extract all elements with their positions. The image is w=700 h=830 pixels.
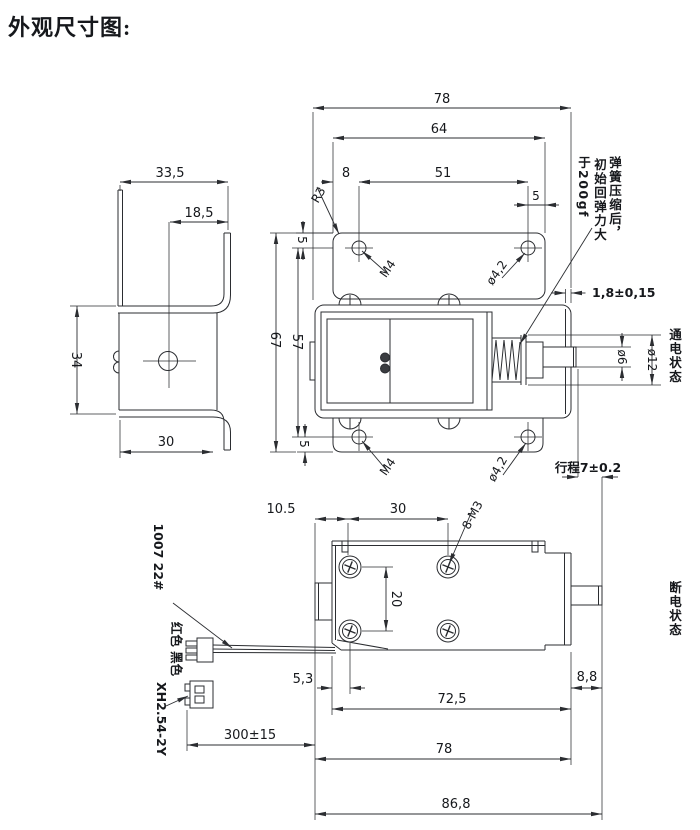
front-bottom-plate: [333, 418, 543, 452]
dim-edge-offset-bottom: 5: [297, 440, 311, 448]
leader-corner-radius: [317, 187, 339, 234]
dim-shaft-dia: ø6: [615, 350, 629, 365]
dim-body-length: 72,5: [438, 692, 467, 707]
washer: [521, 335, 526, 385]
dim-terminal-offset: 10.5: [267, 502, 296, 517]
connector-tooth-1: [186, 641, 197, 646]
wires: [213, 640, 388, 653]
connector-tooth-3: [186, 655, 197, 660]
plunger-shaft: [543, 347, 576, 367]
bottom-tab-slot-left: [342, 541, 348, 552]
leader-screws: [449, 511, 472, 564]
connector-body: [197, 638, 213, 662]
dim-hole-spacing: 51: [435, 166, 452, 181]
bracket-tabs: [339, 294, 460, 429]
spring: [492, 338, 521, 382]
dim-wire-length: 300±15: [224, 728, 276, 743]
screw-bottom-right: [437, 620, 459, 642]
dim-hole-edge-offset: 5: [295, 236, 309, 244]
front-body-outline: [315, 305, 571, 418]
connector-tooth-2: [186, 648, 197, 653]
connector-wing-top: [185, 684, 190, 691]
dim-screw-spacing-h: 30: [390, 502, 407, 517]
front-hole-crosshairs: [345, 422, 542, 451]
dim-frame-height: 67: [267, 332, 282, 349]
energized-state-label: 通电状态: [665, 328, 684, 384]
side-view-outline: [114, 190, 231, 450]
dim-plate-width: 64: [431, 122, 448, 137]
side-view-hole-crosshair: [143, 222, 196, 388]
dim-side-hole-offset: 18,5: [185, 206, 214, 221]
dim-side-bottom-width: 30: [158, 435, 175, 450]
screw-bottom-left: [339, 620, 361, 642]
dim-hole-span: 57: [289, 334, 304, 351]
connector-wing-bottom: [185, 698, 190, 705]
top-hole-crosshairs: [345, 234, 542, 262]
top-view-extension-lines: [292, 112, 571, 300]
dim-stroke: 行程7±0.2: [554, 460, 621, 475]
dim-shaft-protrusion: 8,8: [577, 670, 598, 685]
label-corner-radius: R3: [308, 185, 328, 206]
leader-spring-note: [520, 228, 592, 344]
bottom-view: 10.5 30 8-M3 20 5,3 72,5 8,8 78 86,8 300…: [151, 499, 602, 820]
bottom-tab-slot-right: [532, 541, 538, 552]
screw-top-left: [339, 556, 361, 578]
label-thread-top: M4: [377, 257, 399, 280]
dim-plate-thickness: 1,8±0,15: [592, 285, 655, 300]
dim-hole-right-offset: 5: [532, 189, 540, 203]
label-hole-dia-top: ø4,2: [483, 258, 510, 288]
dim-overall-width: 78: [434, 92, 451, 107]
solenoid-dimension-drawing: 33,5 18,5 34 30 78 64 8 51: [0, 0, 700, 830]
dim-washer-dia: ø12: [645, 349, 659, 372]
connector-face-view: [185, 681, 213, 708]
label-hole-dia-front: ø4,2: [485, 454, 510, 484]
dim-side-height: 34: [68, 352, 83, 369]
dimension-drawing-page: 外观尺寸图: 33,5 18,5 34 30: [0, 0, 700, 830]
side-view: 33,5 18,5 34 30: [68, 166, 231, 458]
connector-face-outline: [190, 681, 213, 708]
bottom-extension-lines: [187, 523, 571, 820]
deenergized-state-label: 断电状态: [665, 581, 684, 637]
top-view: 78 64 8 51 5 5 R3 M4 ø4,2: [292, 92, 592, 344]
coil-bobbin: [327, 319, 473, 403]
connector-slot-1: [195, 686, 204, 693]
label-thread-front: M4: [377, 455, 399, 478]
terminal-block: [315, 583, 332, 620]
connector-side-view: [186, 638, 213, 662]
terminal-bump-side: [310, 342, 315, 380]
wire-terminal-dot-2: [381, 364, 390, 373]
screw-top-right: [437, 556, 459, 578]
dim-screw-edge-offset: 5,3: [293, 672, 314, 687]
label-screws: 8-M3: [459, 499, 485, 532]
dim-hole-left-offset: 8: [342, 166, 350, 181]
label-connector-type: XH2.54-2Y: [154, 682, 169, 757]
dim-screw-spacing-v: 20: [388, 591, 403, 608]
dim-side-top-width: 33,5: [156, 166, 185, 181]
coil-divider: [390, 312, 487, 410]
coil-frame: [321, 312, 492, 410]
dim-overall-length: 86,8: [442, 797, 471, 812]
connector-slot-2: [195, 696, 204, 703]
spring-note-line3: 于200gf: [574, 156, 593, 218]
wire-terminal-dot-1: [381, 353, 390, 362]
dim-body-overall: 78: [436, 742, 453, 757]
bottom-shaft: [571, 586, 602, 605]
label-wire-spec: 1007 22#: [151, 523, 166, 590]
plunger-head: [526, 342, 543, 378]
label-wire-colors: 红色 黑色: [169, 622, 184, 677]
